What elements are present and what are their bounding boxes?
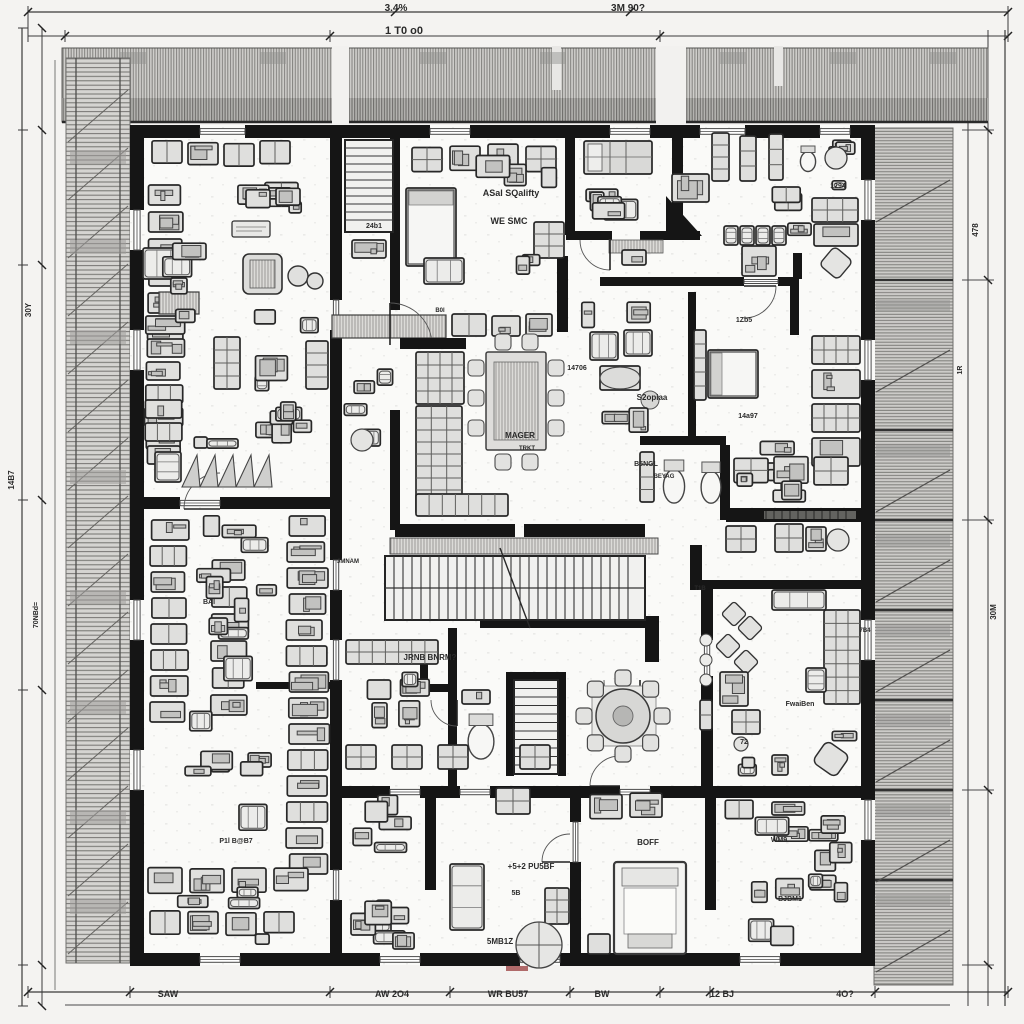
svg-text:ASal SQalifty: ASal SQalifty <box>483 188 540 198</box>
svg-text:3M 90?: 3M 90? <box>611 3 645 14</box>
svg-text:14706: 14706 <box>567 365 587 372</box>
svg-text:14B7: 14B7 <box>7 470 16 490</box>
svg-text:BAl: BAl <box>203 599 215 606</box>
svg-text:TRKT: TRKT <box>519 446 535 452</box>
svg-text:FwaiBen: FwaiBen <box>786 701 815 708</box>
svg-text:70NBd=: 70NBd= <box>33 602 40 628</box>
svg-text:BJBM1: BJBM1 <box>778 896 802 903</box>
svg-text:B5NGL: B5NGL <box>634 461 658 468</box>
svg-text:JRNB BNRM?: JRNB BNRM? <box>404 653 457 662</box>
svg-text:1 T0 o0: 1 T0 o0 <box>385 25 423 37</box>
svg-text:1R: 1R <box>957 366 964 375</box>
svg-text:BOFF: BOFF <box>637 838 659 847</box>
svg-text:14a97: 14a97 <box>738 413 758 420</box>
svg-text:BW: BW <box>595 989 610 999</box>
svg-text:S2opiaa: S2opiaa <box>637 393 668 402</box>
svg-text:478: 478 <box>971 223 980 237</box>
svg-text:1Zb5: 1Zb5 <box>736 317 752 324</box>
svg-text:7B4: 7B4 <box>859 628 871 634</box>
svg-text:T1B: T1B <box>694 586 706 592</box>
svg-text:30Y: 30Y <box>24 302 33 317</box>
svg-text:BEYAG: BEYAG <box>654 474 675 480</box>
svg-text:3.4%: 3.4% <box>385 3 408 14</box>
svg-text:MAGER: MAGER <box>505 431 535 440</box>
svg-text:SAW: SAW <box>158 989 179 999</box>
svg-text:P1l B@B7: P1l B@B7 <box>219 838 252 845</box>
svg-text:12 BJ: 12 BJ <box>710 989 734 999</box>
svg-text:WR BU57: WR BU57 <box>488 989 529 999</box>
svg-text:1294: 1294 <box>830 183 846 190</box>
svg-text:24b1: 24b1 <box>366 223 382 230</box>
svg-text:AW 2O4: AW 2O4 <box>375 989 409 999</box>
svg-text:WE SMC: WE SMC <box>491 216 528 226</box>
svg-text:5MB1Z: 5MB1Z <box>487 937 513 946</box>
svg-text:B0l: B0l <box>435 308 445 314</box>
svg-text:JMNAM: JMNAM <box>337 559 359 565</box>
svg-text:+5+2 PU5BF: +5+2 PU5BF <box>508 862 555 871</box>
svg-text:4O?: 4O? <box>836 989 854 999</box>
svg-text:30M: 30M <box>989 604 998 620</box>
svg-text:WM9: WM9 <box>771 837 787 844</box>
svg-text:5B: 5B <box>512 890 521 897</box>
svg-text:72: 72 <box>740 739 748 746</box>
